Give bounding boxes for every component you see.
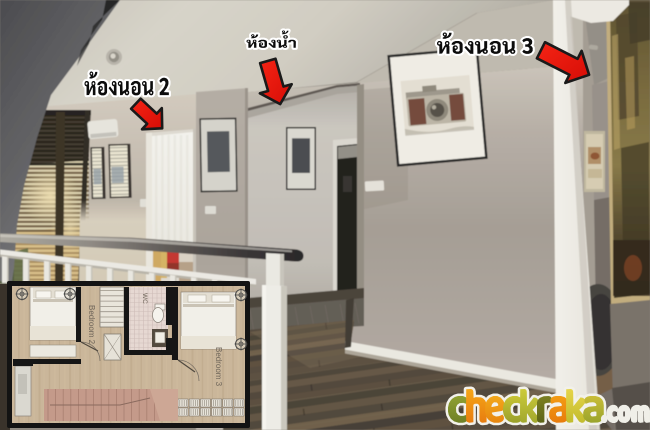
svg-text:WC: WC bbox=[141, 293, 148, 304]
svg-text:Bedroom 3: Bedroom 3 bbox=[214, 347, 223, 387]
svg-text:Bedroom 2: Bedroom 2 bbox=[87, 305, 96, 345]
